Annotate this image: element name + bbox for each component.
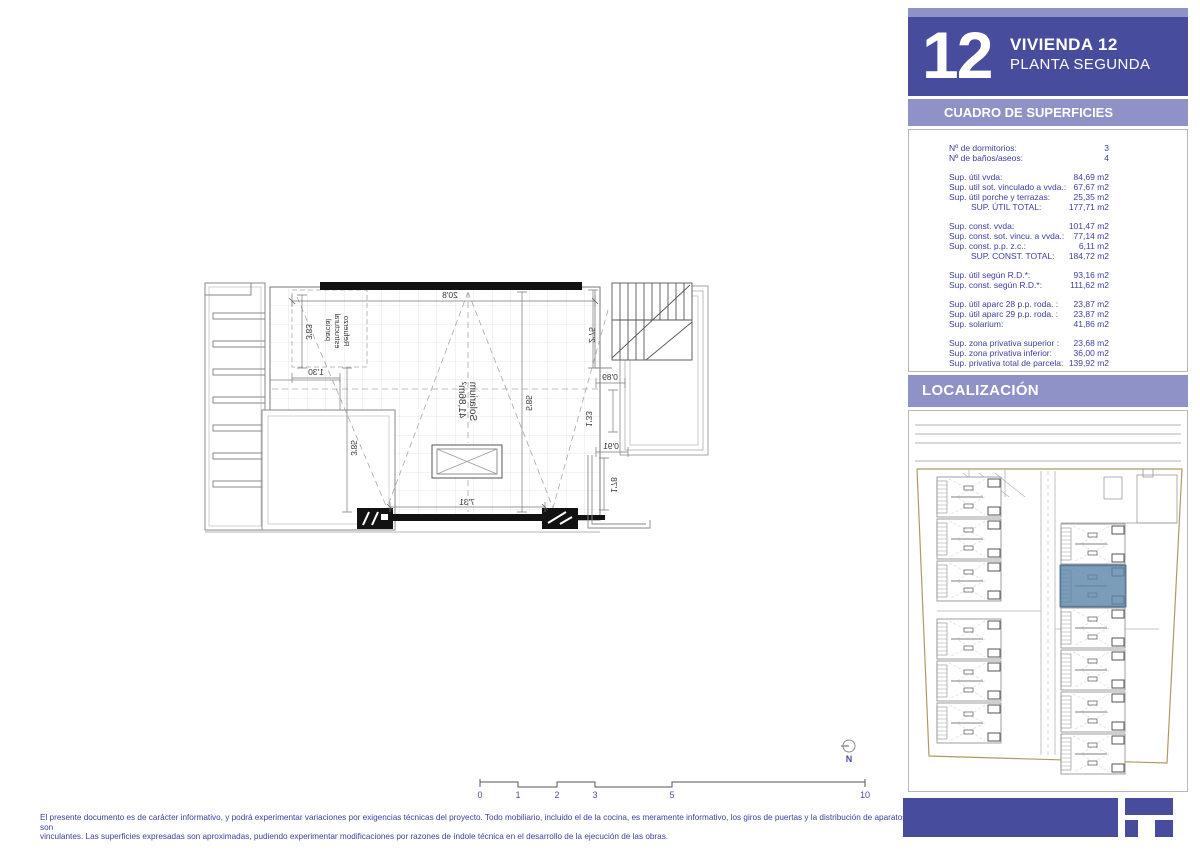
map-structures <box>1061 469 1177 523</box>
surfaces-heading: CUADRO DE SUPERFICIES <box>908 99 1188 126</box>
pergola-slats <box>205 283 265 530</box>
map-right-column <box>1061 524 1125 774</box>
dim-left-step: 1'30 <box>308 367 324 377</box>
table-row: Sup. zona privativa inferior:36,00 m2 <box>949 348 1109 358</box>
brand-logo-block-left <box>1125 820 1138 837</box>
north-icon: N <box>841 740 855 764</box>
table-row: Sup. const. p.p. z.c.:6,11 m2 <box>949 241 1109 251</box>
dim-left-lower: 3'85 <box>349 440 359 456</box>
scale-0: 0 <box>477 790 482 800</box>
north-label: N <box>846 754 853 764</box>
table-row: Sup. const. según R.D.*:111,62 m2 <box>949 280 1109 290</box>
table-row: Sup. útil vvda:84,69 m2 <box>949 172 1109 182</box>
disclaimer-line-2: vinculantes. Las superficies expresadas … <box>40 832 965 842</box>
footer-bar <box>903 798 1118 837</box>
dim-right-b: 1'33 <box>584 411 594 427</box>
surfaces-table: Nº de dormitorios:3 Nº de baños/aseos:4 … <box>908 129 1188 372</box>
brand-logo-block-top <box>1125 798 1173 815</box>
disclaimer: El presente documento es de carácter inf… <box>40 813 965 842</box>
table-row: Nº de dormitorios:3 <box>949 143 1109 153</box>
dim-top: 20'8 <box>442 290 458 300</box>
table-row: Sup. útil aparc 29 p.p. roda. :23,87 m2 <box>949 309 1109 319</box>
brand-logo-block-right <box>1155 820 1173 837</box>
unit-number: 12 <box>908 17 1010 96</box>
scale-2: 2 <box>554 790 559 800</box>
dim-right-a: 0'89 <box>602 372 618 382</box>
highlighted-unit <box>1060 565 1126 607</box>
localizacion-map <box>909 411 1187 791</box>
table-row-total: SUP. ÚTIL TOTAL:177,71 m2 <box>949 202 1109 212</box>
scale-3: 3 <box>592 790 597 800</box>
table-row: Sup. zona privativa superior :23,68 m2 <box>949 338 1109 348</box>
dim-center: 5'85 <box>524 395 534 411</box>
scale-5: 5 <box>669 790 674 800</box>
dim-right-upper: 2'75 <box>587 327 597 343</box>
dim-left-upper: 3'83 <box>304 324 314 340</box>
table-row-total: SUP. CONST. TOTAL:184,72 m2 <box>949 251 1109 261</box>
table-row: Sup. util sot. vinculado a vvda.:67,67 m… <box>949 182 1109 192</box>
unit-header: 12 VIVIENDA 12 PLANTA SEGUNDA <box>908 17 1188 96</box>
map-road <box>915 425 1181 461</box>
staircase <box>612 283 692 360</box>
disclaimer-line-1: El presente documento es de carácter inf… <box>40 813 965 832</box>
unit-subtitle: PLANTA SEGUNDA <box>1010 55 1150 74</box>
localizacion-heading: LOCALIZACIÓN <box>908 375 1188 407</box>
dim-right-d: 1'78 <box>609 477 619 493</box>
skylight <box>432 445 502 478</box>
scale-10: 10 <box>860 790 870 800</box>
scale-1: 1 <box>515 790 520 800</box>
localizacion-map-panel <box>908 410 1188 792</box>
map-left-column <box>937 477 1001 743</box>
scale-bar: 0 1 2 3 5 10 <box>477 779 870 800</box>
sidebar-top-strip <box>908 8 1188 17</box>
table-row: Sup. const. vvda:101,47 m2 <box>949 221 1109 231</box>
table-row: Sup. útil porche y terrazas:25,35 m2 <box>949 192 1109 202</box>
table-row: Sup. útil aparc 28 p.p. roda. :23,87 m2 <box>949 299 1109 309</box>
table-row: Nº de baños/aseos:4 <box>949 153 1109 163</box>
table-row: Sup. const. sot. vincu. a vvda.:77,14 m2 <box>949 231 1109 241</box>
table-row: Sup. privativa total de parcela:139,92 m… <box>949 358 1109 368</box>
room-label: Solarium 41,86m² <box>456 379 478 421</box>
table-row: Sup. solarium:41,86 m2 <box>949 319 1109 329</box>
dim-right-c: 0'91 <box>603 441 619 451</box>
dim-bottom: 7'31 <box>459 497 475 507</box>
table-row: Sup. útil según R.D.*:93,16 m2 <box>949 270 1109 280</box>
unit-title: VIVIENDA 12 <box>1010 34 1150 55</box>
